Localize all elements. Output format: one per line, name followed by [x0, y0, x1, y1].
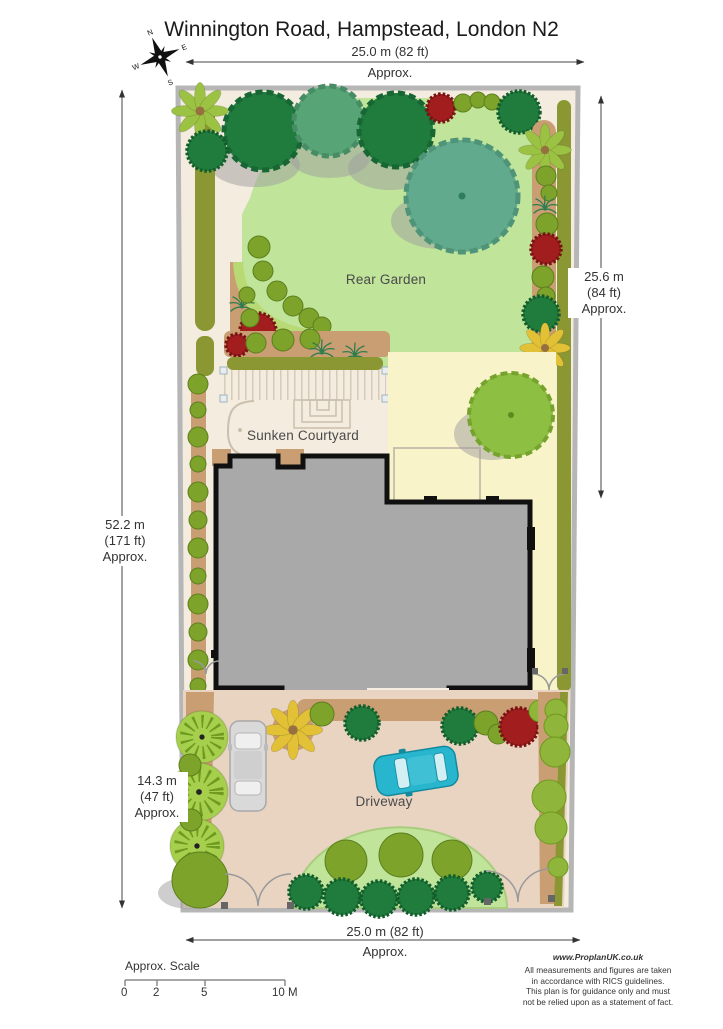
- silver-car: [228, 721, 268, 811]
- scale-bar-line: [125, 980, 285, 986]
- large-tree: [294, 86, 364, 156]
- compass-south-label: S: [166, 77, 174, 87]
- driveway-area: [158, 661, 570, 917]
- compass-east-label: E: [180, 42, 188, 52]
- compass-west-label: W: [131, 61, 142, 72]
- fan-tree: [176, 711, 228, 763]
- site-plan: N E S W: [0, 0, 723, 1024]
- rear-garden-area: [210, 86, 545, 368]
- courtyard-hedge: [227, 357, 383, 370]
- corner-tree: [172, 852, 228, 908]
- large-tree: [224, 92, 302, 170]
- compass-north-label: N: [146, 27, 154, 37]
